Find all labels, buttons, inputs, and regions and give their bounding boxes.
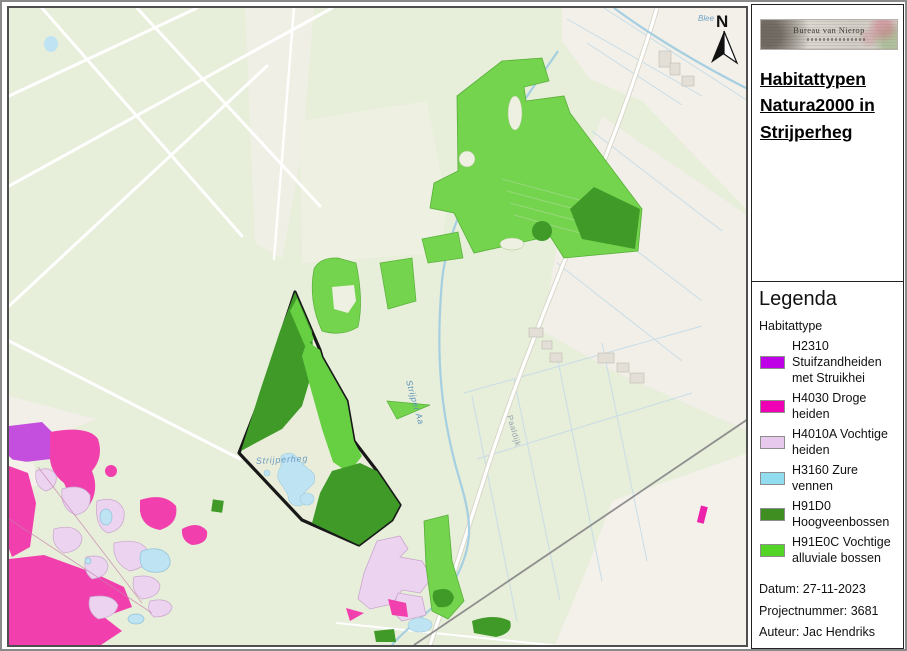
legend-item: H4010A Vochtige heiden: [759, 426, 899, 458]
legend-label: H2310 Stuifzandheiden met Struikhei: [792, 338, 899, 386]
map-title-line: Natura2000 in: [760, 92, 897, 118]
title-section: Bureau van Nierop Habitattypen Natura200…: [752, 5, 903, 281]
metadata-project-number: Projectnummer: 3681: [759, 601, 899, 623]
legend-item: H2310 Stuifzandheiden met Struikhei: [759, 338, 899, 386]
legend-heading: Legenda: [759, 288, 899, 311]
map-document: Strijperheg Strijper Aa Paaldijk Blee N …: [0, 0, 907, 651]
legend-item: H3160 Zure vennen: [759, 462, 899, 494]
north-letter: N: [716, 12, 728, 31]
map-canvas: Strijperheg Strijper Aa Paaldijk Blee N: [9, 8, 746, 645]
legend-swatch-h2310: [760, 356, 785, 369]
legend-item: H91E0C Vochtige alluviale bossen: [759, 534, 899, 566]
legend-items: H2310 Stuifzandheiden met Struikhei H403…: [759, 338, 899, 566]
logo-subline: [807, 38, 867, 41]
legend-label: H91E0C Vochtige alluviale bossen: [792, 534, 899, 566]
logo-text: Bureau van Nierop: [761, 25, 897, 35]
legend-swatch-h3160: [760, 472, 785, 485]
metadata-background: Achtergrond: Openstreetmap: [759, 644, 899, 649]
stream-top-label: Blee: [698, 14, 715, 23]
map-title-line: Strijperheg: [760, 119, 897, 145]
legend-subheading: Habitattype: [759, 319, 899, 333]
logo-banner: Bureau van Nierop: [760, 19, 898, 50]
legend-swatch-h4030: [760, 400, 785, 413]
legend-label: H3160 Zure vennen: [792, 462, 899, 494]
legend-label: H91D0 Hoogveenbossen: [792, 498, 899, 530]
legend-swatch-h91d0: [760, 508, 785, 521]
legend-swatch-h4010a: [760, 436, 785, 449]
legend-swatch-h91e0c: [760, 544, 785, 557]
map-metadata: Datum: 27-11-2023 Projectnummer: 3681 Au…: [759, 579, 899, 648]
side-panel: Bureau van Nierop Habitattypen Natura200…: [751, 4, 904, 649]
map-title-line: Habitattypen: [760, 66, 897, 92]
map-title: Habitattypen Natura2000 in Strijperheg: [760, 66, 897, 145]
legend-label: H4030 Droge heiden: [792, 390, 899, 422]
legend-item: H91D0 Hoogveenbossen: [759, 498, 899, 530]
metadata-author: Auteur: Jac Hendriks: [759, 622, 899, 644]
legend-section: Legenda Habitattype H2310 Stuifzandheide…: [752, 281, 903, 648]
legend-item: H4030 Droge heiden: [759, 390, 899, 422]
metadata-date: Datum: 27-11-2023: [759, 579, 899, 601]
map-area: Strijperheg Strijper Aa Paaldijk Blee N: [7, 6, 748, 647]
legend-label: H4010A Vochtige heiden: [792, 426, 899, 458]
